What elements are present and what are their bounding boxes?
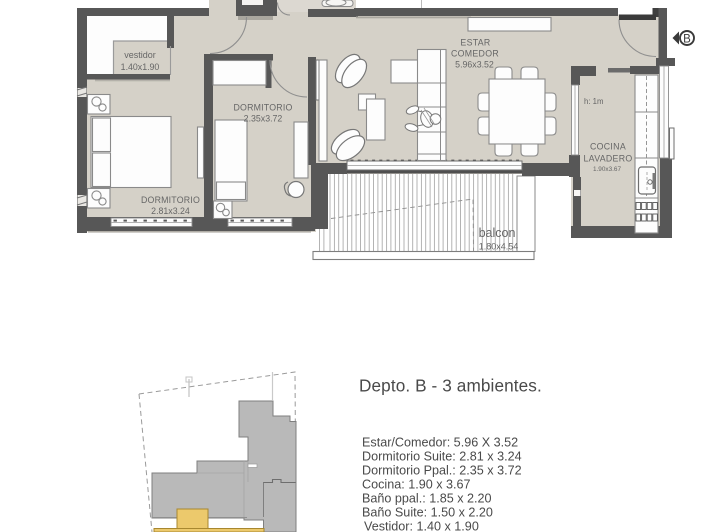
svg-text:h: 1m: h: 1m [584,97,604,106]
svg-text:Baño Suite: 1.50 x 2.20: Baño Suite: 1.50 x 2.20 [362,506,493,520]
svg-text:2.81x3.24: 2.81x3.24 [151,206,190,216]
svg-text:DORMITORIO: DORMITORIO [141,195,200,205]
svg-text:COMEDOR: COMEDOR [451,49,499,59]
svg-text:LAVADERO: LAVADERO [583,154,632,164]
svg-text:5.96x3.52: 5.96x3.52 [455,60,494,70]
svg-text:2.35x3.72: 2.35x3.72 [244,114,283,124]
svg-text:1.90x3.67: 1.90x3.67 [593,166,622,173]
svg-text:DORMITORIO: DORMITORIO [233,103,292,113]
svg-text:Estar/Comedor: 5.96 X 3.52: Estar/Comedor: 5.96 X 3.52 [362,436,518,450]
svg-text:Baño ppal.: 1.85 x 2.20: Baño ppal.: 1.85 x 2.20 [362,492,492,506]
svg-text:COCINA: COCINA [590,142,626,152]
svg-text:Depto. B - 3 ambientes.: Depto. B - 3 ambientes. [359,376,542,396]
svg-text:B: B [683,33,691,45]
svg-text:Cocina: 1.90 x 3.67: Cocina: 1.90 x 3.67 [362,478,471,492]
svg-text:vestidor: vestidor [124,50,156,60]
svg-text:1.40x1.90: 1.40x1.90 [121,62,160,72]
svg-text:Dormitorio Suite: 2.81 x 3.24: Dormitorio Suite: 2.81 x 3.24 [362,450,522,464]
svg-text:Vestidor: 1.40 x 1.90: Vestidor: 1.40 x 1.90 [364,520,479,532]
svg-text:Dormitorio Ppal.: 2.35 x 3.72: Dormitorio Ppal.: 2.35 x 3.72 [362,464,522,478]
svg-text:balcon: balcon [479,226,516,240]
svg-text:1.80x4.54: 1.80x4.54 [479,242,519,252]
svg-text:ESTAR: ESTAR [460,38,490,48]
